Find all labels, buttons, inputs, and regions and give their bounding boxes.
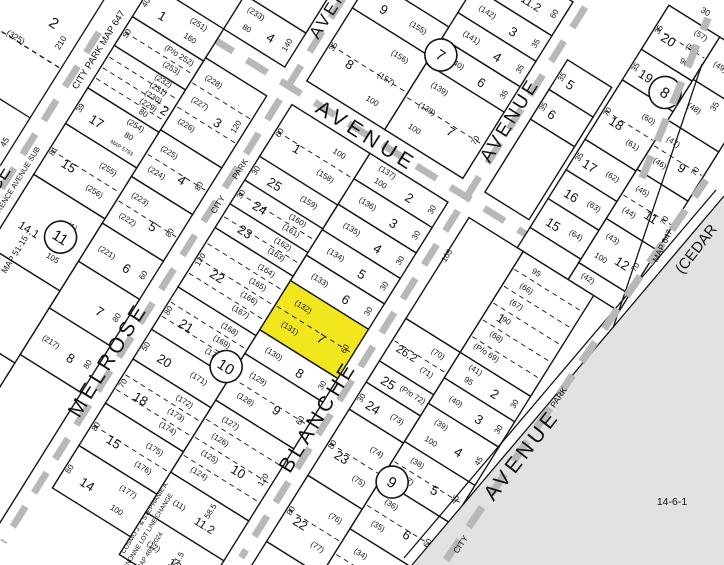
sheet-number: 14-6-1 <box>657 496 688 508</box>
plat-map-canvas: 140(251)16050(P/o 252)(253)2(232)(231)(2… <box>0 0 724 565</box>
plat-map: 140(251)16050(P/o 252)(253)2(232)(231)(2… <box>0 0 724 565</box>
